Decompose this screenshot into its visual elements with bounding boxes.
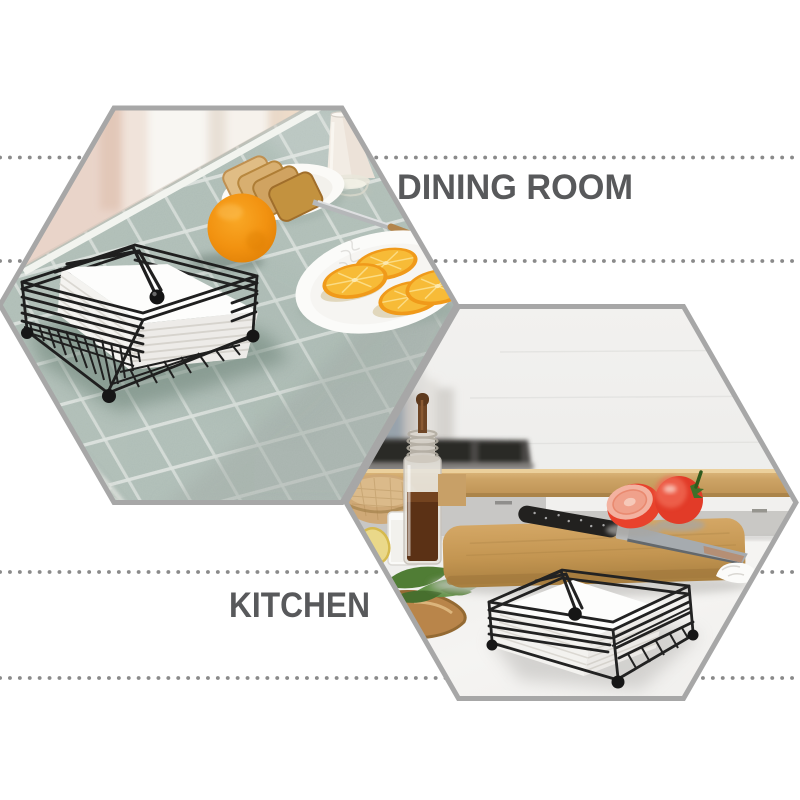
svg-text:KITCHEN: KITCHEN [229,585,370,625]
svg-text:DINING ROOM: DINING ROOM [397,167,633,207]
